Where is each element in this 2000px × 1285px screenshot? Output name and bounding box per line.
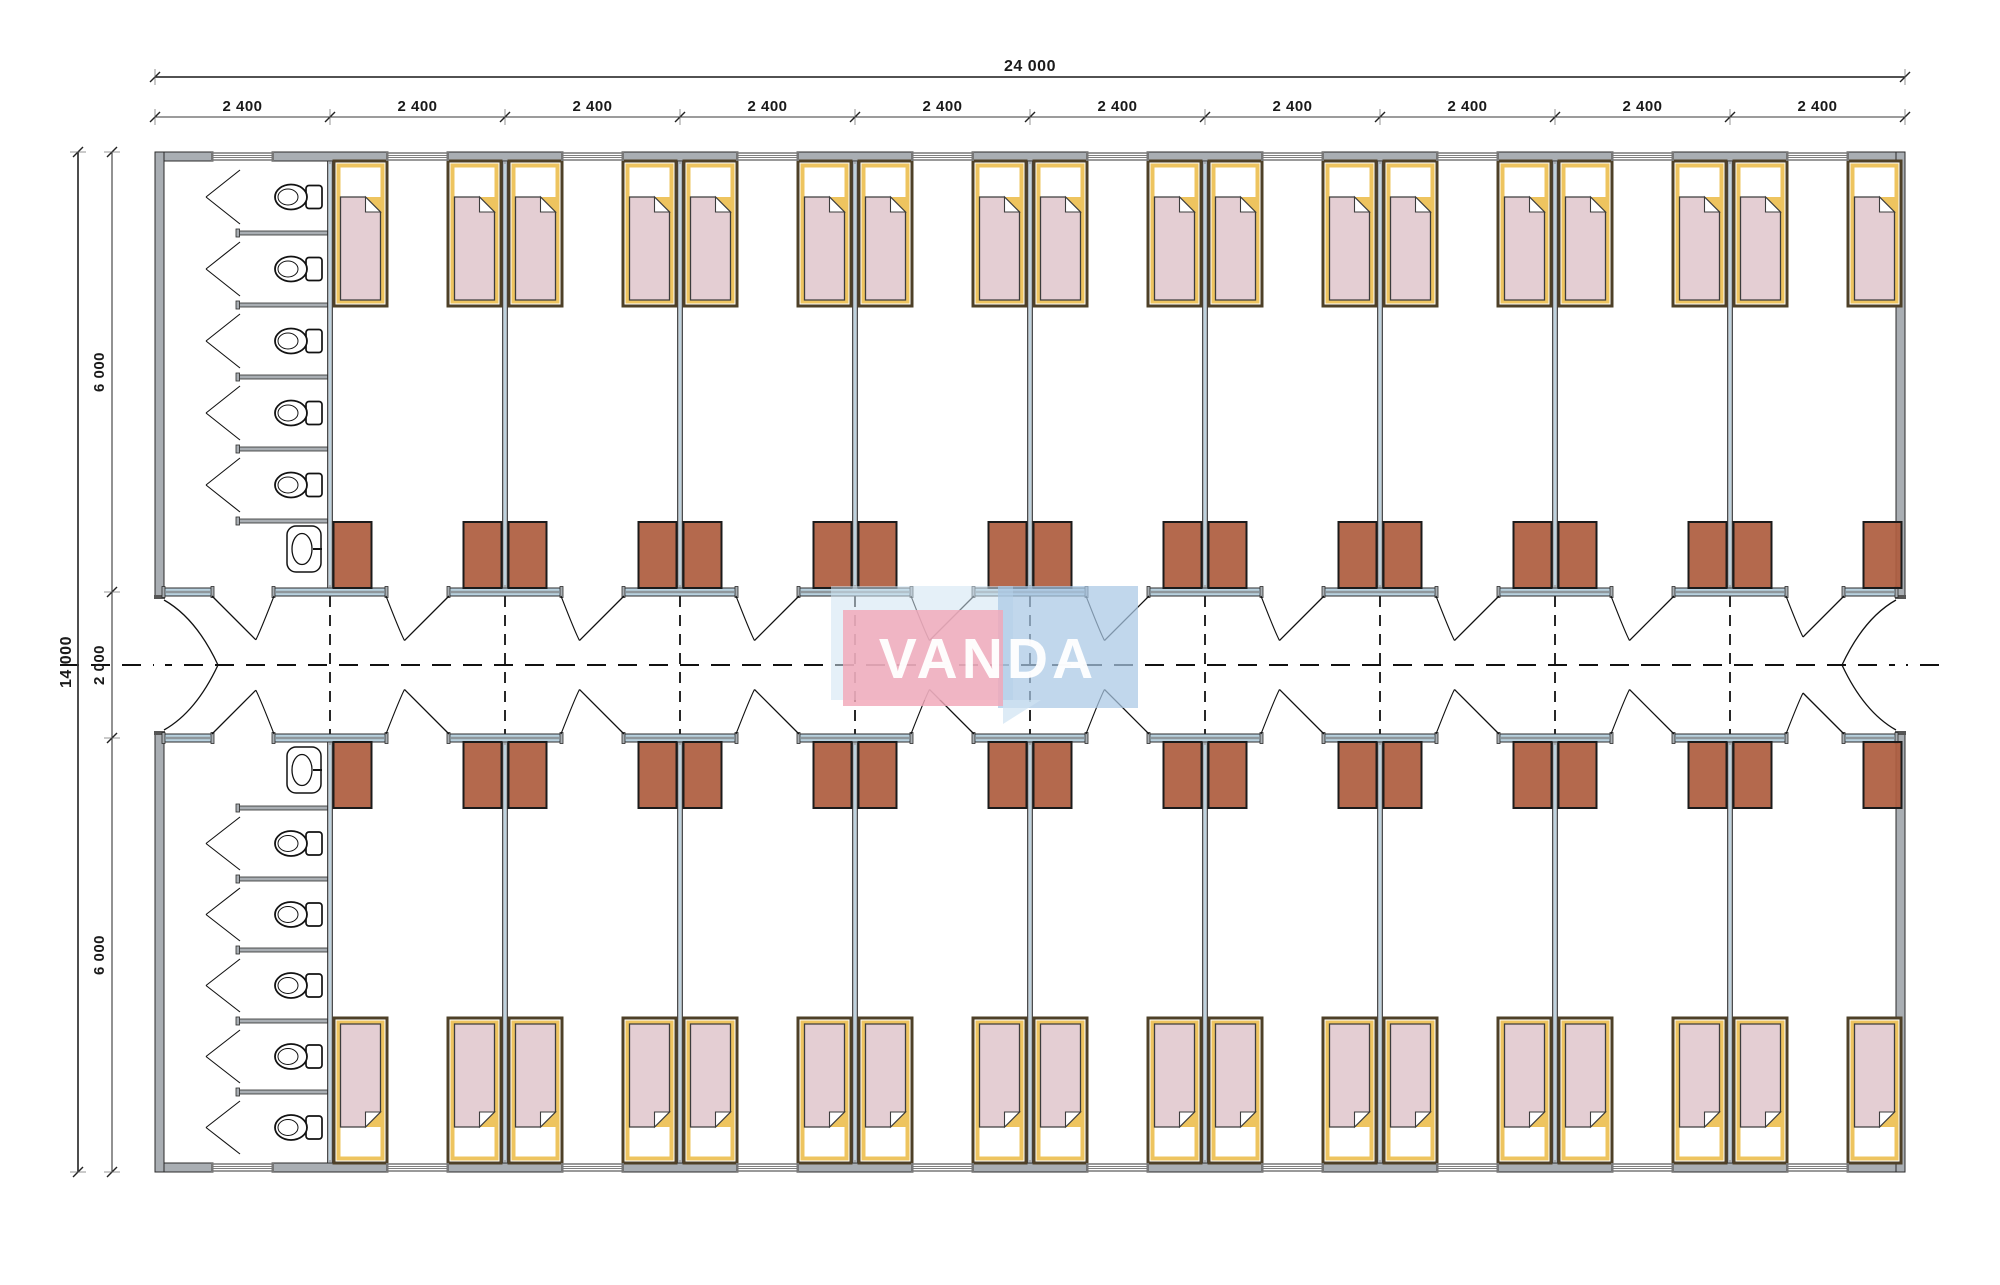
bed [1498, 161, 1551, 306]
wardrobe [859, 742, 897, 808]
room-door-arc [386, 596, 404, 641]
bed [509, 161, 562, 306]
window-jamb [797, 152, 800, 161]
window-jamb [1261, 1163, 1264, 1172]
dimension-label: 2 400 [747, 98, 787, 115]
window-jamb [1322, 1163, 1325, 1172]
bed [623, 1018, 676, 1163]
window-jamb [272, 152, 275, 161]
stall-divider-wall [238, 877, 328, 881]
toilet-tank [306, 832, 322, 855]
bed [1848, 161, 1901, 306]
room-door-arc [561, 689, 579, 734]
bed [973, 1018, 1026, 1163]
wardrobe [814, 742, 852, 808]
room-door-arc [736, 689, 754, 734]
wardrobe [1689, 742, 1727, 808]
sink-basin [292, 755, 312, 786]
window-jamb [1497, 152, 1500, 161]
window-jamb [1786, 1163, 1789, 1172]
window-jamb [1611, 152, 1614, 161]
end-door-leaf [164, 665, 218, 730]
window-jamb [1261, 152, 1264, 161]
bed [1734, 161, 1787, 306]
wardrobe [1209, 522, 1247, 588]
toilet-bowl [275, 329, 307, 354]
window-jamb [447, 152, 450, 161]
toilet-bowl [275, 473, 307, 498]
wardrobe [639, 742, 677, 808]
room-door-arc [1436, 689, 1454, 734]
window-jamb [1147, 152, 1150, 161]
wardrobe [684, 522, 722, 588]
wardrobe [989, 742, 1027, 808]
window-jamb [561, 152, 564, 161]
bed [448, 161, 501, 306]
wardrobe [1734, 522, 1772, 588]
stall-divider-wall [238, 519, 328, 523]
stall-door-leaf [206, 888, 240, 915]
stall-door-leaf [206, 1128, 240, 1155]
window-jamb [972, 152, 975, 161]
window-jamb [1672, 1163, 1675, 1172]
dimension-label: 2 400 [1097, 98, 1137, 115]
bed [684, 161, 737, 306]
bed [509, 1018, 562, 1163]
window-jamb [386, 1163, 389, 1172]
toilet-bowl [275, 1115, 307, 1140]
stall-door-leaf [206, 844, 240, 871]
wardrobe [1164, 522, 1202, 588]
stall-door-leaf [206, 242, 240, 269]
toilet-tank [306, 186, 322, 209]
dimension-label: 6 000 [91, 935, 108, 975]
wardrobe [1864, 742, 1902, 808]
bed [1148, 161, 1201, 306]
wardrobe [1384, 522, 1422, 588]
window-jamb [1322, 152, 1325, 161]
wardrobe [1864, 522, 1902, 588]
wardrobe [1734, 742, 1772, 808]
window-jamb [797, 1163, 800, 1172]
bed [1559, 1018, 1612, 1163]
bed [1148, 1018, 1201, 1163]
dimension-label: 2 400 [1447, 98, 1487, 115]
window-jamb [1672, 152, 1675, 161]
wardrobe [1514, 742, 1552, 808]
stall-door-leaf [206, 314, 240, 341]
window-jamb [211, 1163, 214, 1172]
room-door-arc [1261, 689, 1279, 734]
room-door-leaf [754, 596, 799, 641]
room-door-arc [1611, 596, 1629, 641]
wardrobe [684, 742, 722, 808]
room-door-arc [1436, 596, 1454, 641]
watermark-text: VANDA [879, 627, 1097, 691]
bed [859, 161, 912, 306]
dimension-label: 14 000 [58, 636, 75, 688]
wall-cap [162, 733, 165, 744]
dimension-label: 2 400 [397, 98, 437, 115]
wall-cap [236, 517, 240, 525]
stall-door-leaf [206, 170, 240, 197]
wardrobe [1384, 742, 1422, 808]
window-jamb [1436, 1163, 1439, 1172]
stall-door-leaf [206, 817, 240, 844]
toilet-tank [306, 1045, 322, 1068]
end-door-leaf [164, 600, 218, 665]
wall-cap [236, 229, 240, 237]
toilet [275, 1044, 322, 1069]
room-door-arc [1786, 596, 1803, 637]
bed [1498, 1018, 1551, 1163]
stall-door-leaf [206, 197, 240, 224]
toilet-tank [306, 1116, 322, 1139]
floor-plan-svg: 24 0002 4002 4002 4002 4002 4002 4002 40… [0, 0, 2000, 1285]
end-door-opening [154, 598, 165, 732]
bed [859, 1018, 912, 1163]
toilet-tank [306, 474, 322, 497]
stall-door-leaf [206, 986, 240, 1013]
dimension-label: 2 400 [572, 98, 612, 115]
room-door-leaf [1629, 596, 1674, 641]
room-door-leaf [404, 689, 449, 734]
end-door-leaf [1842, 665, 1896, 730]
stall-door-leaf [206, 485, 240, 512]
window-jamb [911, 152, 914, 161]
stall-door-leaf [206, 1057, 240, 1084]
room-door-leaf [1454, 689, 1499, 734]
stall-divider-wall [238, 375, 328, 379]
wardrobe [1559, 742, 1597, 808]
bed [1848, 1018, 1901, 1163]
dimension-label: 2 400 [1272, 98, 1312, 115]
bed [1559, 161, 1612, 306]
wall-cap [236, 301, 240, 309]
bed [684, 1018, 737, 1163]
room-door-leaf [1803, 596, 1844, 637]
stall-door-leaf [206, 959, 240, 986]
window-jamb [1147, 1163, 1150, 1172]
window-jamb [1847, 1163, 1850, 1172]
bed [798, 1018, 851, 1163]
bed [334, 1018, 387, 1163]
toilet-tank [306, 258, 322, 281]
window-jamb [972, 1163, 975, 1172]
window-jamb [1611, 1163, 1614, 1172]
window-jamb [1086, 1163, 1089, 1172]
floor-plan-page: 24 0002 4002 4002 4002 4002 4002 4002 40… [0, 0, 2000, 1285]
room-door-leaf [1629, 689, 1674, 734]
toilet [275, 831, 322, 856]
window-jamb [272, 1163, 275, 1172]
dimension-label: 2 000 [91, 645, 108, 685]
stall-door-leaf [206, 341, 240, 368]
room-door-arc [1261, 596, 1279, 641]
room-door-arc [561, 596, 579, 641]
toilet-bowl [275, 973, 307, 998]
bed [1034, 161, 1087, 306]
wardrobe [1339, 522, 1377, 588]
toilet [275, 185, 322, 210]
wall-cap [236, 1088, 240, 1096]
wardrobe [509, 742, 547, 808]
bed [1209, 1018, 1262, 1163]
toilet-tank [306, 903, 322, 926]
bed [623, 161, 676, 306]
bed [798, 161, 851, 306]
wardrobe [1514, 522, 1552, 588]
wall-cap [162, 587, 165, 598]
window-jamb [736, 152, 739, 161]
stall-divider-wall [238, 1019, 328, 1023]
dimension-label: 6 000 [91, 352, 108, 392]
toilet [275, 401, 322, 426]
sink-basin [292, 534, 312, 565]
wall-cap [236, 875, 240, 883]
stall-divider-wall [238, 1090, 328, 1094]
dimension-label: 2 400 [222, 98, 262, 115]
stall-door-leaf [206, 458, 240, 485]
wardrobe [1034, 522, 1072, 588]
window-jamb [386, 152, 389, 161]
bed [1673, 161, 1726, 306]
window-jamb [561, 1163, 564, 1172]
dimension-label: 2 400 [1622, 98, 1662, 115]
window-jamb [1847, 152, 1850, 161]
room-door-leaf [579, 596, 624, 641]
window-jamb [622, 152, 625, 161]
wardrobe [509, 522, 547, 588]
watermark: VANDA [831, 586, 1138, 724]
wardrobe [814, 522, 852, 588]
toilet [275, 257, 322, 282]
toilet [275, 473, 322, 498]
window-jamb [1497, 1163, 1500, 1172]
bathroom-door-leaf [212, 596, 256, 640]
window-jamb [1436, 152, 1439, 161]
wall-cap [236, 373, 240, 381]
wall-cap [236, 445, 240, 453]
wall-cap [236, 1017, 240, 1025]
wardrobe [1209, 742, 1247, 808]
stall-door-leaf [206, 386, 240, 413]
toilet [275, 902, 322, 927]
room-door-arc [1611, 689, 1629, 734]
stall-divider-wall [238, 806, 328, 810]
wardrobe [464, 522, 502, 588]
end-door-leaf [1842, 600, 1896, 665]
bed [1673, 1018, 1726, 1163]
toilet [275, 973, 322, 998]
stall-divider-wall [238, 303, 328, 307]
wardrobe [1164, 742, 1202, 808]
toilet-tank [306, 402, 322, 425]
bed [1034, 1018, 1087, 1163]
wardrobe [989, 522, 1027, 588]
bed [1384, 161, 1437, 306]
stall-door-leaf [206, 413, 240, 440]
wall-cap [236, 804, 240, 812]
dimension-label: 2 400 [1797, 98, 1837, 115]
toilet-tank [306, 974, 322, 997]
wardrobe [1034, 742, 1072, 808]
wardrobe [639, 522, 677, 588]
toilet [275, 329, 322, 354]
bathroom-door-arc [256, 690, 274, 734]
room-door-leaf [404, 596, 449, 641]
wardrobe [334, 742, 372, 808]
wardrobe [1689, 522, 1727, 588]
bed [973, 161, 1026, 306]
room-door-leaf [1803, 693, 1844, 734]
toilet-bowl [275, 401, 307, 426]
room-door-leaf [754, 689, 799, 734]
toilet-bowl [275, 831, 307, 856]
bathroom-door-leaf [212, 690, 256, 734]
room-door-leaf [1279, 689, 1324, 734]
toilet-bowl [275, 1044, 307, 1069]
window-jamb [211, 152, 214, 161]
toilet-tank [306, 330, 322, 353]
dimension-label: 2 400 [922, 98, 962, 115]
window-jamb [622, 1163, 625, 1172]
stall-divider-wall [238, 447, 328, 451]
room-door-leaf [1279, 596, 1324, 641]
bed [1323, 1018, 1376, 1163]
stall-door-leaf [206, 915, 240, 942]
wardrobe [1339, 742, 1377, 808]
stall-door-leaf [206, 269, 240, 296]
stall-door-leaf [206, 1101, 240, 1128]
room-door-arc [386, 689, 404, 734]
wardrobe [1559, 522, 1597, 588]
toilet-bowl [275, 185, 307, 210]
room-door-leaf [1454, 596, 1499, 641]
bed [1384, 1018, 1437, 1163]
toilet-bowl [275, 257, 307, 282]
room-door-arc [736, 596, 754, 641]
window-jamb [911, 1163, 914, 1172]
window-jamb [447, 1163, 450, 1172]
bed [1734, 1018, 1787, 1163]
wardrobe [859, 522, 897, 588]
bed [1209, 161, 1262, 306]
wall-cap [236, 946, 240, 954]
dimension-label: 24 000 [1004, 58, 1056, 75]
end-door-opening [1895, 598, 1906, 732]
stall-divider-wall [238, 948, 328, 952]
window-jamb [736, 1163, 739, 1172]
toilet-bowl [275, 902, 307, 927]
bed [448, 1018, 501, 1163]
wardrobe [334, 522, 372, 588]
stall-divider-wall [238, 231, 328, 235]
wardrobe [464, 742, 502, 808]
window-jamb [1786, 152, 1789, 161]
room-door-leaf [579, 689, 624, 734]
stall-door-leaf [206, 1030, 240, 1057]
toilet [275, 1115, 322, 1140]
window-jamb [1086, 152, 1089, 161]
bed [334, 161, 387, 306]
bathroom-door-arc [256, 596, 274, 640]
bed [1323, 161, 1376, 306]
room-door-arc [1786, 693, 1803, 734]
